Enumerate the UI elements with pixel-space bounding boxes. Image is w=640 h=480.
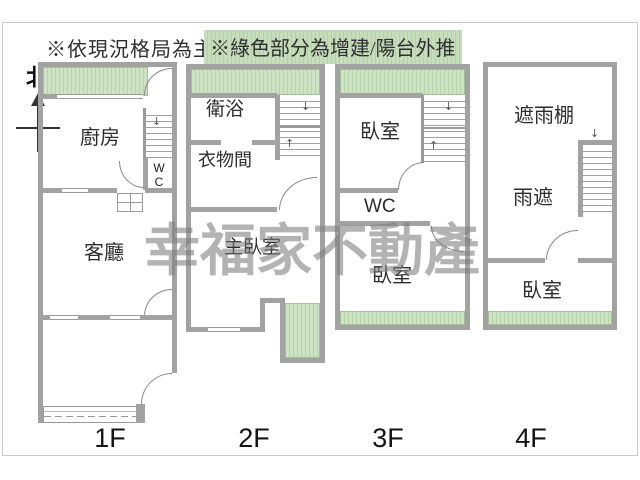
f1-stair-down-arrow-icon: ↓ xyxy=(152,116,161,127)
f2-balcony-ext-green xyxy=(285,303,320,358)
f2-step-wall-v xyxy=(260,298,265,332)
f2-balcony-green xyxy=(191,69,320,95)
f4-bedroom-label: 臥室 xyxy=(522,280,562,302)
f3-stair-up-arrow-icon: ↑ xyxy=(429,140,438,151)
f1-wall-mid1-a xyxy=(43,188,62,193)
f2-wall-bath-a xyxy=(191,140,221,145)
f3-wall-bottom xyxy=(335,325,470,330)
f1-window-mid2-a xyxy=(50,315,78,320)
f3-stair-divider xyxy=(424,127,465,129)
f3-stair-down-arrow-icon: ↓ xyxy=(444,101,453,112)
f4-stair-wall-top xyxy=(578,140,617,145)
f3-balcony-bottom-green xyxy=(340,311,465,325)
f2-stair-up-arrow-icon: ↑ xyxy=(285,138,294,149)
f1-roller-shutter xyxy=(43,406,138,423)
f1-window-mid2-b xyxy=(110,315,140,320)
f1-wall-mid1-b xyxy=(88,188,117,193)
f1-step-box xyxy=(117,193,143,212)
f1-shutter-post xyxy=(136,404,145,423)
f3-wall-below-green xyxy=(340,93,423,98)
f3-wall-right xyxy=(465,64,470,330)
f4-stairs xyxy=(583,146,612,217)
f1-kitchen-label: 廚房 xyxy=(80,127,120,149)
f4-stair-down-arrow-icon: ↓ xyxy=(590,128,599,139)
note-primary: ※依現況格局為主 xyxy=(46,33,214,62)
f2-stair-down-arrow-icon: ↓ xyxy=(301,101,310,112)
f1-window-top xyxy=(57,94,143,99)
f1-window-mid1 xyxy=(62,188,88,193)
f4-wall-left xyxy=(483,62,488,330)
f2-wall-below-green xyxy=(191,93,277,98)
f3-wall-left xyxy=(335,64,340,330)
f1-wall-mid1-c xyxy=(145,188,172,193)
f4-balcony-bottom-green xyxy=(488,311,612,325)
f4-rain-shade-label: 雨遮 xyxy=(513,187,553,209)
f3-floor-label: 3F xyxy=(366,423,410,454)
f3-wall-wc-top xyxy=(340,188,398,193)
f4-wall-top xyxy=(483,62,617,67)
f1-wall-mid2-a xyxy=(43,315,50,320)
f1-balcony-green xyxy=(43,67,148,96)
f1-floor-label: 1F xyxy=(88,423,132,454)
f4-wall-right xyxy=(612,62,617,330)
f2-stair-divider xyxy=(280,126,320,128)
f4-wall-mid-b xyxy=(578,258,617,263)
f2-wall-bath-b xyxy=(252,140,275,145)
f3-bedroom-top-label: 臥室 xyxy=(360,121,400,143)
f2-wall-left xyxy=(186,64,191,332)
f1-wall-below-balcony xyxy=(43,94,57,99)
f3-balcony-green xyxy=(340,69,465,95)
f1-wc-label: W C xyxy=(151,162,167,190)
f4-canopy-label: 遮雨棚 xyxy=(514,105,574,127)
f2-wall-bottom-a xyxy=(191,327,208,332)
f4-wall-bottom xyxy=(483,325,617,330)
f2-stairs xyxy=(280,96,320,160)
watermark-text: 幸福家不動產 xyxy=(144,206,480,287)
f4-floor-label: 4F xyxy=(509,423,553,454)
f4-wall-mid-a xyxy=(483,258,545,263)
f1-living-label: 客廳 xyxy=(84,242,124,264)
f1-wall-mid2-b xyxy=(78,315,110,320)
f2-closet-label: 衣物間 xyxy=(198,151,252,171)
note-green-legend: ※綠色部分為增建/陽台外推 xyxy=(204,30,462,64)
f2-bathroom-label: 衛浴 xyxy=(206,100,244,121)
f2-window-bottom xyxy=(208,327,240,332)
f1-wall-mid2-c xyxy=(140,315,177,320)
floorplan-image: ※依現況格局為主 ※綠色部分為增建/陽台外推 北 幸福家不動產 ↓ W C 廚房… xyxy=(0,0,640,480)
f1-wall-left xyxy=(38,62,43,423)
f2-floor-label: 2F xyxy=(232,423,276,454)
f2-balcony-wall-bottom xyxy=(280,358,325,363)
